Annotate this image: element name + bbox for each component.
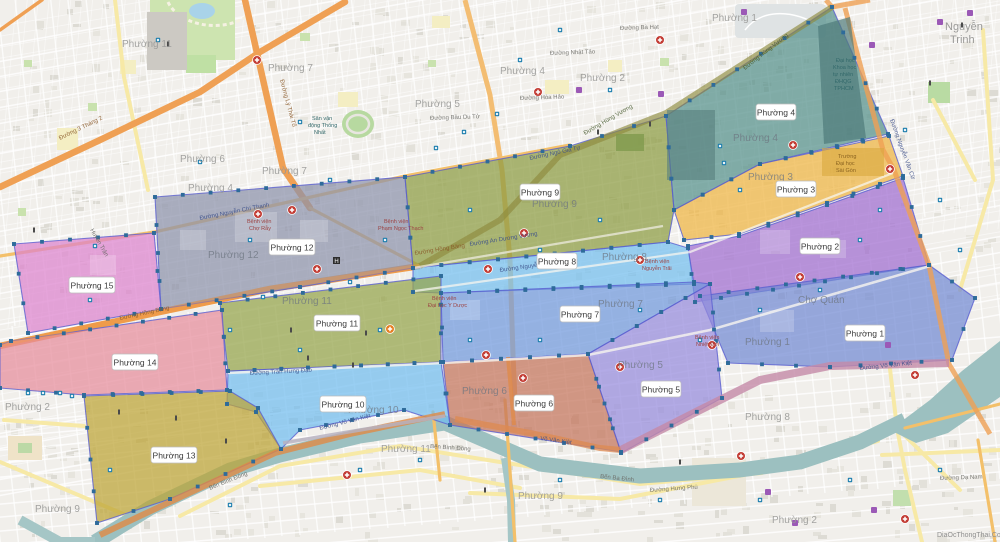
- svg-text:Sân vận: Sân vận: [312, 116, 332, 122]
- svg-text:Chợ Rẫy: Chợ Rẫy: [249, 225, 271, 232]
- svg-text:Phường 15: Phường 15: [71, 281, 114, 291]
- svg-text:Phường 7: Phường 7: [561, 310, 599, 320]
- svg-text:Phường 14: Phường 14: [114, 358, 157, 368]
- svg-text:Nguyễn: Nguyễn: [945, 20, 983, 33]
- svg-text:Phường 5: Phường 5: [618, 360, 663, 371]
- svg-text:Phường 12: Phường 12: [271, 243, 314, 253]
- svg-text:Phường 4: Phường 4: [500, 66, 545, 77]
- svg-text:Phường 8: Phường 8: [745, 412, 790, 423]
- svg-text:Phường 2: Phường 2: [5, 402, 50, 413]
- svg-text:Phường 9: Phường 9: [518, 491, 563, 502]
- svg-text:Nhiệt Đới: Nhiệt Đới: [696, 342, 719, 348]
- svg-text:Bệnh viện: Bệnh viện: [384, 219, 408, 225]
- svg-text:Phường 8: Phường 8: [538, 257, 576, 267]
- svg-text:Phường 7: Phường 7: [598, 299, 643, 310]
- svg-text:Phường 6: Phường 6: [180, 154, 225, 165]
- svg-text:Phường 1: Phường 1: [745, 337, 790, 348]
- svg-text:Phường 1: Phường 1: [712, 13, 757, 24]
- svg-text:Phường 6: Phường 6: [462, 386, 507, 397]
- svg-text:Phường 4: Phường 4: [733, 133, 778, 144]
- svg-text:Bệnh viện: Bệnh viện: [695, 335, 719, 341]
- svg-text:Phường 5: Phường 5: [642, 385, 680, 395]
- svg-text:TPHCM: TPHCM: [834, 86, 854, 92]
- svg-text:Khoa học: Khoa học: [833, 65, 856, 71]
- svg-text:động Thống: động Thống: [308, 123, 337, 129]
- svg-text:Phường 9: Phường 9: [35, 504, 80, 515]
- svg-text:Phường 11: Phường 11: [316, 319, 359, 329]
- svg-text:Phường 4: Phường 4: [757, 108, 795, 118]
- svg-text:Phường 2: Phường 2: [580, 73, 625, 84]
- svg-text:Phường 9: Phường 9: [521, 188, 559, 198]
- svg-text:Trinh: Trinh: [950, 34, 975, 46]
- svg-text:Phường 1: Phường 1: [846, 329, 884, 339]
- svg-text:Phường 7: Phường 7: [268, 63, 313, 74]
- svg-text:Phường 13: Phường 13: [153, 451, 196, 461]
- svg-text:ĐHQG: ĐHQG: [835, 79, 852, 85]
- svg-text:Đại học Y Dược: Đại học Y Dược: [428, 303, 467, 309]
- svg-text:Phường 3: Phường 3: [777, 185, 815, 195]
- svg-text:DiaOcThongThai.Com: DiaOcThongThai.Com: [937, 532, 1000, 539]
- svg-text:Bệnh viện: Bệnh viện: [432, 296, 456, 302]
- svg-text:H: H: [334, 259, 338, 265]
- svg-text:Phường 5: Phường 5: [415, 99, 460, 110]
- svg-text:tự nhiên: tự nhiên: [833, 72, 853, 78]
- svg-text:Phường 2: Phường 2: [801, 242, 839, 252]
- svg-text:Bệnh viện: Bệnh viện: [247, 219, 271, 225]
- svg-text:Phường 2: Phường 2: [772, 515, 817, 526]
- svg-text:Bệnh viện: Bệnh viện: [645, 259, 669, 265]
- svg-text:Nhất: Nhất: [314, 130, 326, 136]
- svg-text:Nguyễn Trãi: Nguyễn Trãi: [642, 265, 672, 272]
- svg-text:Trường: Trường: [838, 154, 856, 160]
- svg-text:Đại học: Đại học: [836, 58, 855, 64]
- svg-text:Sài Gòn: Sài Gòn: [836, 168, 856, 174]
- svg-text:Phường 11: Phường 11: [381, 444, 431, 455]
- svg-text:Phường 9: Phường 9: [532, 199, 577, 210]
- svg-text:Phường 10: Phường 10: [322, 400, 365, 410]
- svg-text:Phường 7: Phường 7: [262, 166, 307, 177]
- svg-text:Phường 12: Phường 12: [208, 250, 259, 261]
- svg-text:Phường 4: Phường 4: [188, 183, 233, 194]
- svg-text:Phường 11: Phường 11: [122, 39, 172, 50]
- svg-text:Phường 8: Phường 8: [602, 252, 647, 263]
- svg-text:Đại học: Đại học: [836, 161, 855, 167]
- svg-text:Chợ Quán: Chợ Quán: [798, 295, 845, 306]
- svg-text:Phường 11: Phường 11: [282, 296, 332, 307]
- svg-text:Phường 6: Phường 6: [515, 399, 553, 409]
- svg-text:Phạm Ngọc Thạch: Phạm Ngọc Thạch: [378, 226, 423, 232]
